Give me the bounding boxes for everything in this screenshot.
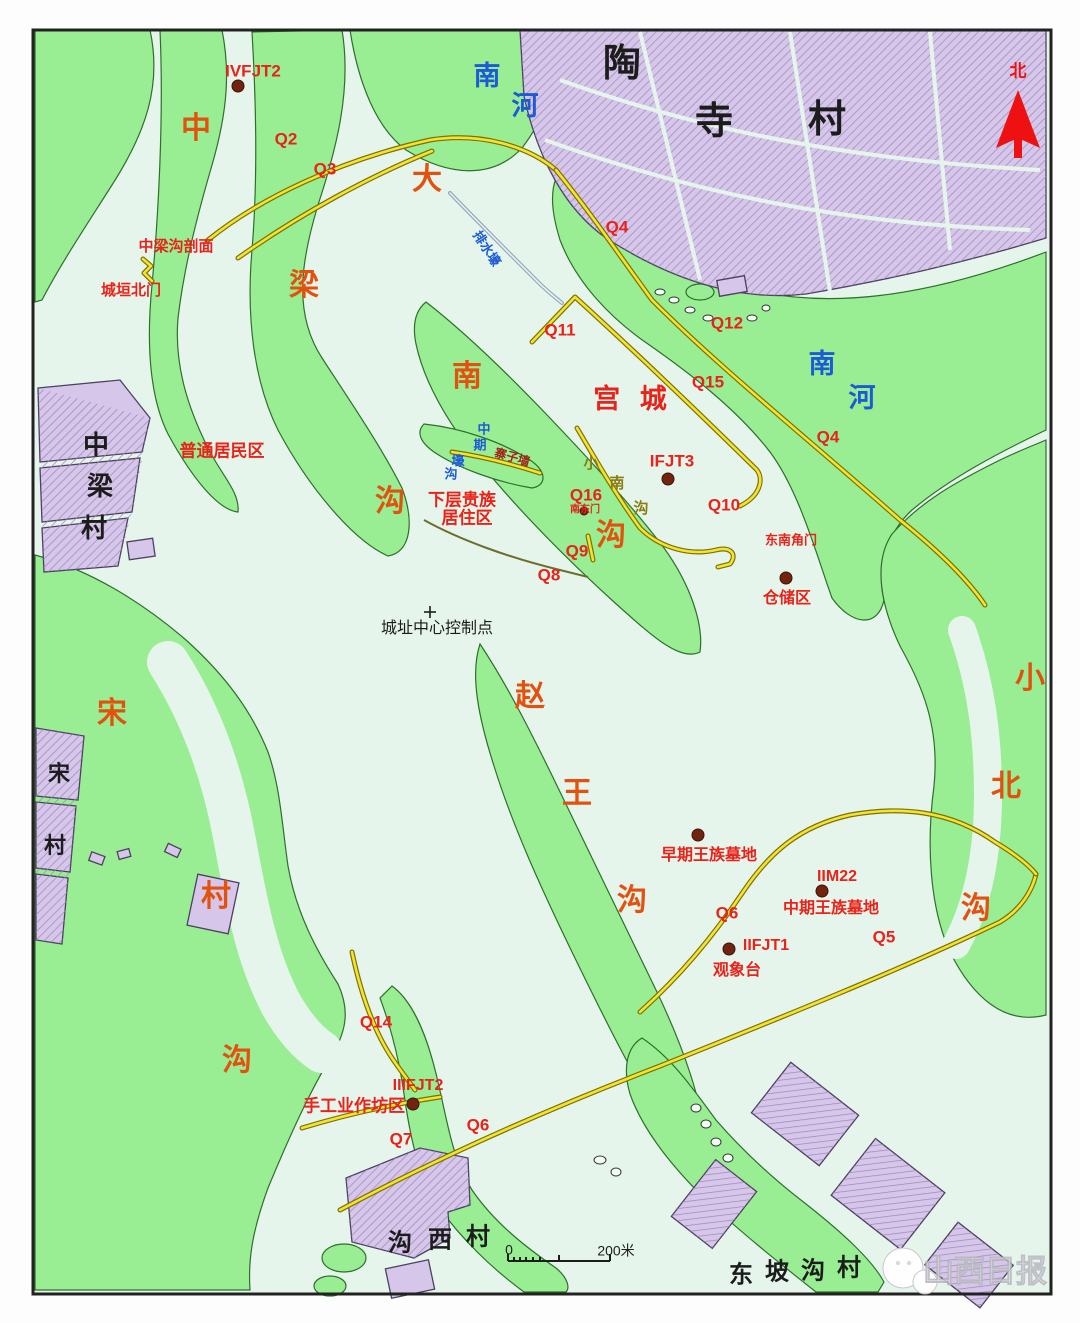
marker-storage <box>780 572 792 584</box>
village-taosi-1: 陶 <box>603 43 641 85</box>
label-handicraft-area: 手工业作坊区 <box>303 1095 405 1115</box>
watermark-text: 山西日报 <box>923 1254 1047 1289</box>
village-dongpogou-4: 村 <box>837 1254 861 1281</box>
village-gouxi-2: 西 <box>428 1226 452 1253</box>
map-page: 北 0 200米 山西日报 IVFJT2Q2Q3中梁沟剖面城垣北门Q4Q11Q1… <box>0 0 1080 1323</box>
label-southeast-corner-gate: 东南角门 <box>765 532 817 547</box>
label-moat-2: 沟 <box>444 466 457 481</box>
label-q15: Q15 <box>692 372 724 391</box>
label-xiaonangou-1: 小 <box>583 455 598 472</box>
label-lower-nobles-1: 下层贵族 <box>428 489 497 509</box>
village-gouxi-3: 村 <box>466 1223 490 1250</box>
label-q12: Q12 <box>711 313 743 332</box>
label-xiaonangou-3: 沟 <box>633 499 648 517</box>
village-taosi-2: 寺 <box>695 101 733 143</box>
scale-zero: 0 <box>505 1242 513 1258</box>
gully-zhong: 中 <box>181 112 211 145</box>
label-middle-period-1: 中 <box>477 421 490 436</box>
label-iiifjt2: IIIFJT2 <box>393 1077 444 1094</box>
gully-bei: 北 <box>991 770 1021 803</box>
terrain-blob-bottom-1 <box>322 1244 366 1272</box>
label-iim22: IIM22 <box>817 868 857 885</box>
marker-ifjt3 <box>662 473 674 485</box>
label-q5: Q5 <box>873 927 896 946</box>
gully-gou-2: 沟 <box>596 519 626 552</box>
label-middle-royal-cemetery: 中期王族墓地 <box>783 898 879 917</box>
label-q6: Q6 <box>716 903 739 922</box>
river-nan-right: 南 <box>809 349 836 379</box>
label-q2: Q2 <box>275 129 298 148</box>
village-song-2: 村 <box>44 833 66 858</box>
gully-wang: 王 <box>562 777 592 810</box>
label-q14: Q14 <box>360 1012 393 1031</box>
label-storage-area: 仓储区 <box>762 588 811 607</box>
gully-gou-3: 沟 <box>617 884 647 917</box>
gully-song: 宋 <box>97 696 127 730</box>
label-se-gate-small: 南东门 <box>570 503 600 516</box>
label-ifjt3: IFJT3 <box>650 451 694 470</box>
village-dongpogou-1: 东 <box>729 1260 753 1288</box>
gully-gou-5: 沟 <box>961 892 991 925</box>
label-north-gate: 城垣北门 <box>101 281 161 299</box>
label-q10: Q10 <box>708 495 740 514</box>
label-site-center-control-point: 城址中心控制点 <box>381 619 493 637</box>
gully-gou-1: 沟 <box>375 485 405 518</box>
gully-da: 大 <box>412 163 442 196</box>
village-gouxi-1: 沟 <box>388 1228 412 1256</box>
marker-iifjt1 <box>723 943 735 955</box>
label-lower-nobles-2: 居住区 <box>442 507 493 527</box>
marker-iim22 <box>816 885 828 897</box>
label-q11: Q11 <box>544 320 575 339</box>
label-q9: Q9 <box>566 541 589 560</box>
gully-xiao: 小 <box>1015 662 1045 695</box>
label-q4-top: Q4 <box>606 217 629 236</box>
label-iifjt1: IIFJT1 <box>743 937 789 954</box>
gully-zhao: 赵 <box>515 680 546 713</box>
village-zhongliang-3: 村 <box>81 513 107 543</box>
label-q3: Q3 <box>314 159 337 178</box>
village-taosi-3: 村 <box>808 99 846 141</box>
label-middle-period-2: 期 <box>473 437 486 452</box>
label-xiaonangou-2: 南 <box>609 474 624 492</box>
taosi-site-map: 北 0 200米 山西日报 IVFJT2Q2Q3中梁沟剖面城垣北门Q4Q11Q1… <box>0 0 1080 1323</box>
label-q6-bottom: Q6 <box>467 1115 490 1134</box>
gully-liang: 梁 <box>289 269 319 302</box>
gully-cun: 村 <box>201 880 231 913</box>
label-q8: Q8 <box>538 565 561 584</box>
village-dongpogou-3: 沟 <box>801 1256 825 1284</box>
village-zhongliang-2: 梁 <box>86 471 113 501</box>
label-palace-city: 宫 城 <box>593 383 673 414</box>
label-q7: Q7 <box>390 1129 413 1148</box>
river-nan-top: 南 <box>474 61 501 91</box>
label-common-residents: 普通居民区 <box>180 440 265 460</box>
marker-early-cemetery <box>692 829 704 841</box>
river-he-top: 河 <box>512 91 539 121</box>
north-label: 北 <box>1010 61 1027 80</box>
watermark: 山西日报 <box>883 1248 1047 1294</box>
village-song-1: 宋 <box>48 761 70 786</box>
river-he-right: 河 <box>849 383 876 413</box>
marker-iiifjt2 <box>407 1098 419 1110</box>
gully-nan: 南 <box>452 360 482 393</box>
label-early-royal-cemetery: 早期王族墓地 <box>661 845 757 864</box>
marker-ivfjt2 <box>232 80 244 92</box>
gully-gou-4: 沟 <box>222 1044 252 1077</box>
label-zhongliang-gou-section: 中梁沟剖面 <box>138 237 213 255</box>
scale-distance: 200米 <box>597 1243 634 1259</box>
label-ivfjt2: IVFJT2 <box>225 61 281 80</box>
label-q4-right: Q4 <box>817 427 840 446</box>
village-zhongliang-1: 中 <box>83 430 109 460</box>
label-observatory: 观象台 <box>713 960 761 979</box>
label-q16: Q16 <box>570 485 602 504</box>
village-dongpogou-2: 坡 <box>765 1258 789 1285</box>
